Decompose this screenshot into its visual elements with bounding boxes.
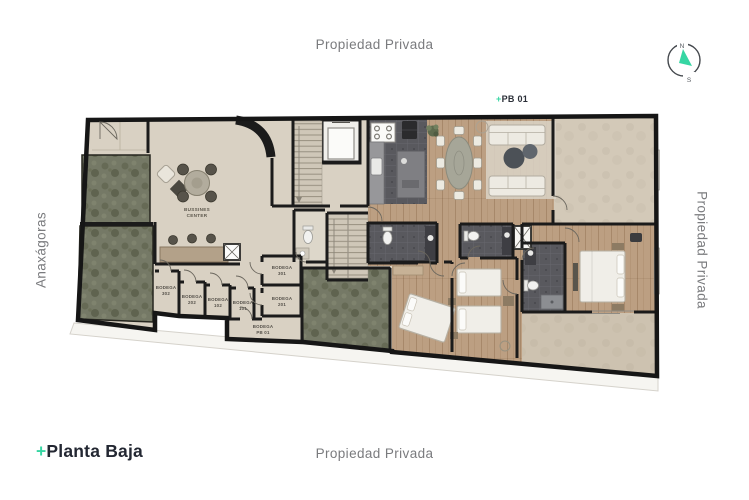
kitchen-sink (371, 158, 382, 175)
business-center-label-1: BUSSINES (184, 207, 210, 212)
master-bathroom (523, 244, 565, 311)
dining-table (446, 137, 473, 189)
shower-drain (551, 301, 554, 304)
bodega-202-number: 202 (188, 300, 196, 305)
dresser (393, 266, 423, 275)
toilet-icon (528, 281, 539, 290)
nightstand (612, 243, 624, 250)
bodega-202-label: BODEGA (182, 294, 203, 299)
pillow (617, 255, 624, 274)
bodega-301-number: 301 (278, 271, 286, 276)
coffee-table-small (523, 144, 538, 159)
bodega-201-label: BODEGA (272, 296, 293, 301)
label-propiedad-privada-right: Propiedad Privada (695, 191, 710, 309)
armchair (630, 233, 642, 242)
garden-lower-left (78, 226, 153, 322)
sink-icon (428, 235, 434, 241)
dining-set (437, 127, 482, 200)
island-bowl (401, 158, 407, 164)
bodega-102-label: BODEGA (208, 297, 229, 302)
island-board (402, 180, 419, 188)
label-propiedad-privada-top: Propiedad Privada (0, 37, 749, 52)
bodega-pb01-number: PB 01 (256, 330, 270, 335)
elevator (322, 120, 360, 163)
living-room (476, 121, 556, 199)
nightstand (612, 304, 624, 311)
reception-desk (160, 247, 228, 262)
unit-label-text: PB 01 (502, 94, 529, 104)
label-anaxagoras: Anaxágoras (34, 212, 49, 288)
vanity (502, 227, 512, 255)
toilet-icon (383, 232, 392, 245)
business-table-center (192, 178, 203, 189)
floor-plan: BUSSINES CENTER BODEGA 302 BODEGA 202 BO… (0, 0, 749, 500)
elevator-cab (328, 128, 354, 159)
skylight-box (224, 244, 240, 260)
toilet-tank (383, 227, 392, 231)
unit-label-pb01: +PB 01 (496, 94, 528, 104)
sink-icon (504, 232, 510, 238)
toilet-icon (304, 231, 313, 244)
business-center-label-2: CENTER (187, 213, 208, 218)
bodega-201-number: 201 (278, 302, 286, 307)
toilet-tank (464, 231, 468, 241)
stairs-upper (294, 121, 322, 206)
pillow (459, 272, 466, 293)
bodega-101-label: BODEGA (233, 300, 254, 305)
common-bathroom (295, 211, 325, 261)
bodega-pb01-label: BODEGA (253, 324, 274, 329)
kitchen (369, 119, 427, 204)
bodega-302-number: 302 (162, 291, 170, 296)
terrace-floor (554, 118, 657, 224)
bathroom-b (461, 225, 513, 257)
bodega-302-label: BODEGA (156, 285, 177, 290)
sofa-top (489, 125, 545, 145)
sink-icon (528, 250, 534, 256)
bathroom-a (369, 224, 437, 263)
bench (573, 263, 578, 291)
toilet-tank (303, 226, 313, 230)
coffee-table-large (504, 148, 525, 169)
nightstand (503, 296, 514, 306)
toilet-icon (468, 232, 479, 241)
bodega-301-label: BODEGA (272, 265, 293, 270)
pillow (617, 278, 624, 297)
sofa-bottom (489, 176, 545, 196)
bodega-102-number: 102 (214, 303, 222, 308)
garden-upper-left (82, 155, 150, 223)
page-title: +Planta Baja (36, 441, 143, 462)
page-title-text: Planta Baja (46, 441, 143, 461)
floor-plan-page: BUSSINES CENTER BODEGA 302 BODEGA 202 BO… (0, 0, 749, 500)
stove (371, 123, 395, 142)
pillow (459, 309, 466, 330)
kitchen-island (397, 151, 425, 198)
compass-south-label: S (687, 77, 692, 84)
plus-accent-icon: + (36, 441, 46, 461)
